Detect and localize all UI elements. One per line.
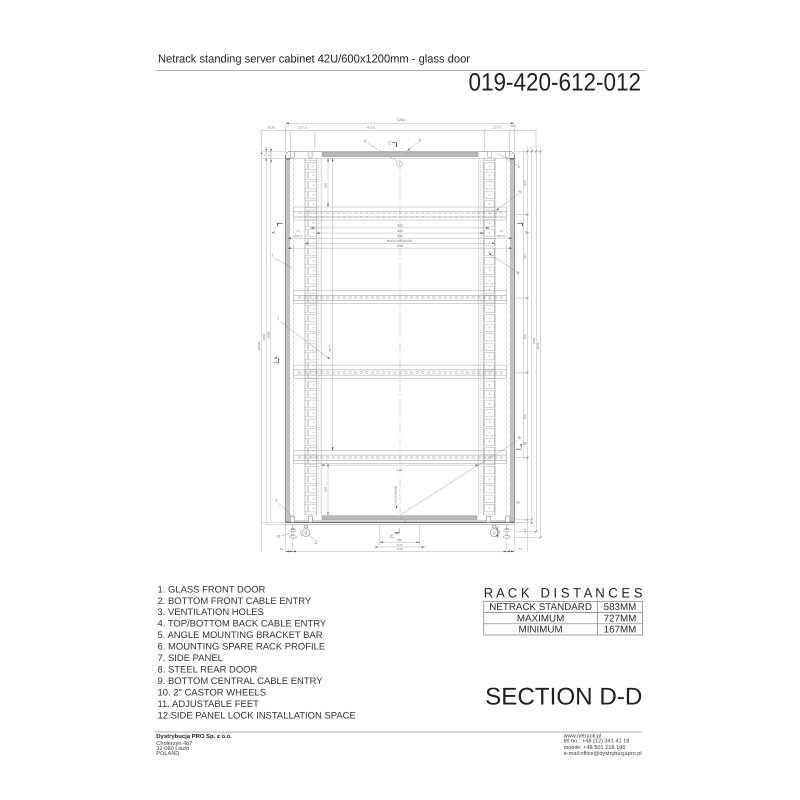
svg-text:7: 7 — [271, 254, 273, 258]
svg-text:4. TOP/BOTTOM BACK CABLE ENTRY: 4. TOP/BOTTOM BACK CABLE ENTRY — [158, 619, 327, 630]
svg-text:(2044): (2044) — [257, 342, 261, 351]
svg-text:298: 298 — [324, 183, 328, 188]
svg-text:3. VENTILATION HOLES: 3. VENTILATION HOLES — [158, 607, 264, 618]
svg-text:421,5: 421,5 — [367, 126, 375, 130]
svg-text:333: 333 — [523, 180, 527, 185]
svg-text:6. MOUNTING SPARE RACK PROFILE: 6. MOUNTING SPARE RACK PROFILE — [158, 642, 326, 653]
svg-text:R A C K D I S T A N C E S: R A C K D I S T A N C E S — [484, 585, 643, 600]
svg-text:1. GLASS FRONT DOOR: 1. GLASS FRONT DOOR — [158, 584, 266, 595]
svg-text:298: 298 — [324, 487, 328, 492]
svg-text:5. ANGLE MOUNTING BRACKET BAR: 5. ANGLE MOUNTING BRACKET BAR — [158, 630, 323, 641]
svg-text:929: 929 — [397, 224, 403, 228]
svg-text:019-420-612-012: 019-420-612-012 — [469, 69, 642, 97]
svg-text:444: 444 — [523, 414, 527, 419]
svg-text:C: C — [388, 141, 391, 146]
svg-text:833: 833 — [397, 234, 403, 238]
svg-text:11: 11 — [277, 535, 281, 539]
svg-text:26,75: 26,75 — [267, 126, 275, 130]
svg-text:Dystrybucja PRO Sp. z o.o.: Dystrybucja PRO Sp. z o.o. — [156, 733, 232, 740]
svg-text:12.SIDE PANEL LOCK INSTALLATIO: 12.SIDE PANEL LOCK INSTALLATION SPACE — [158, 710, 356, 721]
svg-text:1,00: 1,00 — [397, 547, 403, 551]
svg-text:1200: 1200 — [397, 118, 405, 122]
svg-text:e-mail:office@dystrybucjapro.p: e-mail:office@dystrybucjapro.pl — [564, 750, 642, 757]
svg-text:1964: 1964 — [532, 337, 536, 344]
svg-text:2. BOTTOM FRONT CABLE ENTRY: 2. BOTTOM FRONT CABLE ENTRY — [158, 596, 312, 607]
svg-text:11. ADJUSTABLE FEET: 11. ADJUSTABLE FEET — [158, 699, 260, 710]
svg-text:10. 2" CASTOR WHEELS: 10. 2" CASTOR WHEELS — [158, 687, 267, 698]
svg-text:Netrack standing server cabine: Netrack standing server cabinet 42U/600x… — [158, 53, 470, 66]
svg-text:127,0: 127,0 — [493, 126, 501, 130]
svg-text:845: 845 — [397, 229, 403, 233]
svg-text:10: 10 — [314, 540, 318, 544]
svg-text:727MM: 727MM — [604, 613, 637, 624]
svg-text:SECTION D-D: SECTION D-D — [485, 684, 642, 711]
svg-text:tel no.: +48 (12) 341 41 19: tel no.: +48 (12) 341 41 19 — [564, 738, 630, 745]
svg-text:A=0,25(298x98): A=0,25(298x98) — [395, 486, 398, 505]
svg-text:8. STEEL REAR DOOR: 8. STEEL REAR DOOR — [158, 664, 258, 675]
svg-text:1877: 1877 — [328, 344, 332, 351]
svg-text:444: 444 — [523, 334, 527, 339]
svg-text:NETRACK STANDARD: NETRACK STANDARD — [489, 602, 592, 613]
svg-text:859: 859 — [397, 538, 402, 542]
svg-text:MINIMUM: MINIMUM — [519, 625, 563, 636]
svg-text:75: 75 — [296, 229, 300, 233]
svg-text:0,98: 0,98 — [397, 244, 403, 248]
svg-text:(50: (50 — [524, 528, 527, 532]
svg-text:0,29: 0,29 — [397, 543, 403, 547]
svg-text:107,5): 107,5) — [497, 234, 506, 238]
svg-text:127,0: 127,0 — [299, 126, 307, 130]
svg-text:15: 15 — [519, 547, 523, 551]
svg-text:444: 444 — [523, 254, 527, 259]
svg-text:15: 15 — [524, 518, 527, 521]
svg-text:15: 15 — [280, 547, 284, 551]
svg-text:167MM: 167MM — [604, 625, 637, 636]
svg-text:1: 1 — [398, 162, 400, 166]
svg-text:MAXIMUM: MAXIMUM — [517, 613, 564, 624]
svg-text:(107,5: (107,5 — [294, 234, 303, 238]
svg-text:2044: 2044 — [536, 342, 540, 349]
svg-text:9. BOTTOM CENTRAL CABLE ENTRY: 9. BOTTOM CENTRAL CABLE ENTRY — [158, 676, 324, 687]
svg-text:1,00: 1,00 — [396, 468, 402, 472]
svg-text:mobile: +48 501 216 196: mobile: +48 501 216 196 — [564, 744, 626, 751]
svg-text:A: A — [524, 231, 529, 234]
svg-text:26,7: 26,7 — [510, 124, 516, 128]
svg-text:2008: 2008 — [267, 331, 271, 338]
svg-text:583MM: 583MM — [604, 602, 637, 613]
svg-text:POLAND: POLAND — [156, 751, 179, 757]
svg-text:7. SIDE PANEL: 7. SIDE PANEL — [158, 653, 223, 664]
svg-text:A: A — [271, 231, 276, 234]
svg-text:B: B — [273, 356, 278, 359]
svg-text:RACK DISTANCE: RACK DISTANCE — [387, 239, 412, 243]
svg-text:75: 75 — [500, 229, 504, 233]
svg-text:1932: 1932 — [262, 333, 266, 340]
